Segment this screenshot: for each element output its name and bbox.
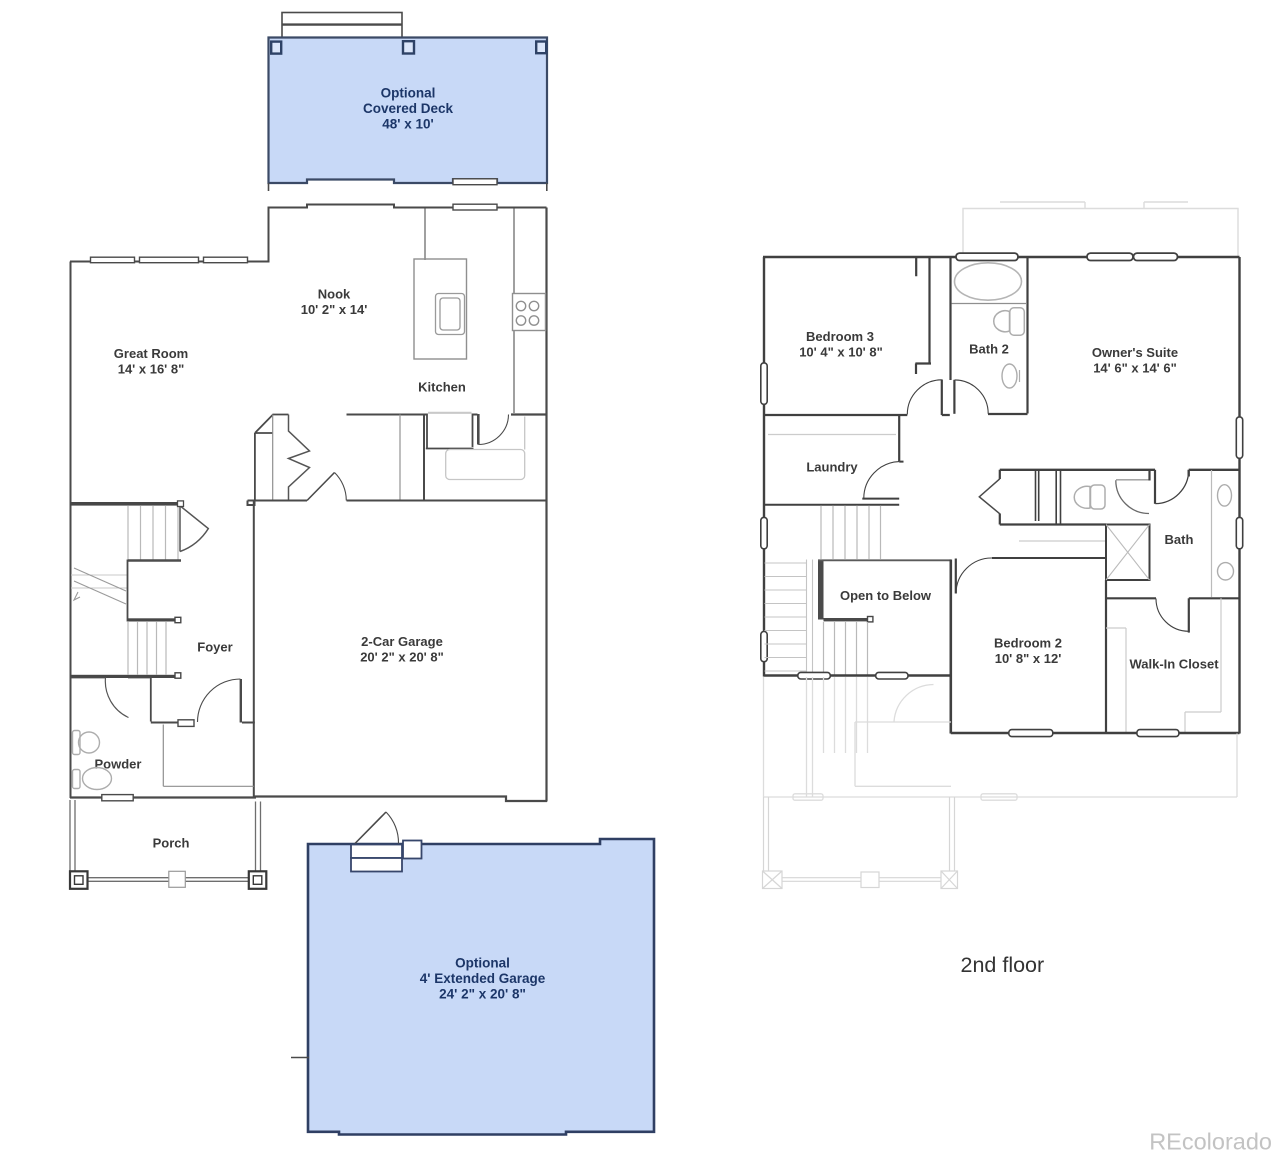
svg-text:Porch: Porch bbox=[153, 836, 190, 851]
svg-text:14' 6" x 14' 6": 14' 6" x 14' 6" bbox=[1093, 361, 1177, 376]
svg-text:Foyer: Foyer bbox=[197, 640, 232, 655]
svg-text:Bath: Bath bbox=[1165, 532, 1194, 547]
svg-text:Owner's Suite: Owner's Suite bbox=[1092, 345, 1178, 360]
svg-text:4' Extended Garage: 4' Extended Garage bbox=[420, 971, 546, 986]
svg-text:20' 2" x 20' 8": 20' 2" x 20' 8" bbox=[360, 650, 444, 665]
svg-text:Powder: Powder bbox=[95, 757, 142, 772]
svg-text:2-Car Garage: 2-Car Garage bbox=[361, 634, 443, 649]
svg-text:REcolorado: REcolorado bbox=[1149, 1129, 1272, 1155]
svg-text:10' 2" x 14': 10' 2" x 14' bbox=[301, 302, 368, 317]
svg-text:Bedroom 2: Bedroom 2 bbox=[994, 636, 1062, 651]
svg-text:Nook: Nook bbox=[318, 287, 351, 302]
svg-text:24' 2" x 20' 8": 24' 2" x 20' 8" bbox=[439, 987, 526, 1002]
svg-text:Optional: Optional bbox=[455, 956, 510, 971]
svg-text:Optional: Optional bbox=[381, 86, 436, 101]
svg-text:Bath 2: Bath 2 bbox=[969, 342, 1009, 357]
svg-text:Kitchen: Kitchen bbox=[418, 380, 466, 395]
svg-text:Open to Below: Open to Below bbox=[840, 588, 932, 603]
svg-text:10' 4" x 10' 8": 10' 4" x 10' 8" bbox=[799, 345, 883, 360]
svg-text:10' 8" x 12': 10' 8" x 12' bbox=[995, 651, 1062, 666]
svg-text:Laundry: Laundry bbox=[806, 460, 858, 475]
svg-text:Bedroom 3: Bedroom 3 bbox=[806, 329, 874, 344]
svg-text:Walk-In Closet: Walk-In Closet bbox=[1129, 657, 1219, 672]
svg-text:48' x 10': 48' x 10' bbox=[382, 117, 433, 132]
svg-text:Great Room: Great Room bbox=[114, 346, 188, 361]
svg-text:Covered Deck: Covered Deck bbox=[363, 101, 454, 116]
svg-text:14' x 16' 8": 14' x 16' 8" bbox=[118, 362, 185, 377]
svg-text:2nd floor: 2nd floor bbox=[961, 953, 1045, 977]
